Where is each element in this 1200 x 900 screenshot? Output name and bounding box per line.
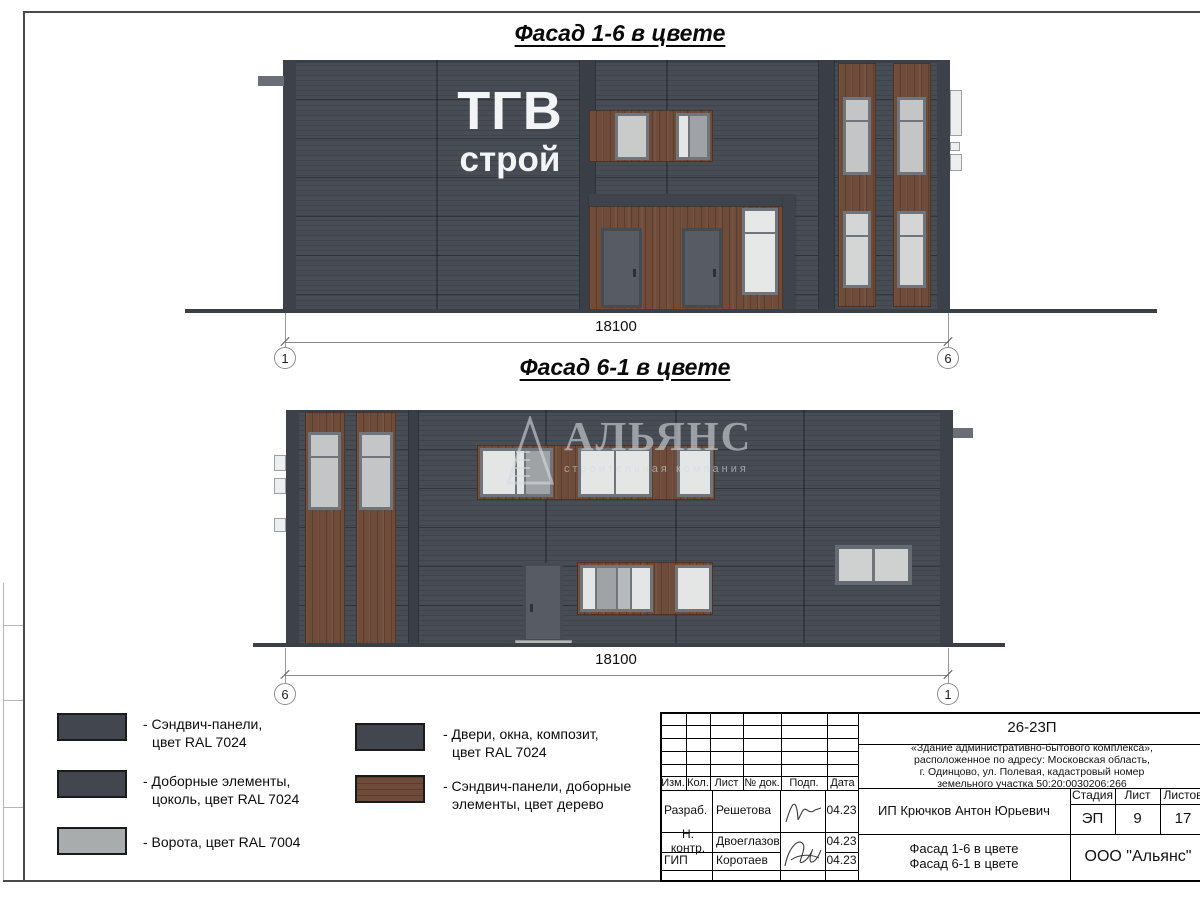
tb-date-ncontrol: 04.23: [825, 832, 858, 852]
tb-date-gip: 04.23: [825, 852, 858, 870]
facade2-right-window: [835, 545, 912, 585]
tb-line: [660, 725, 858, 726]
sign-line-stroy: строй: [430, 142, 590, 177]
window-pane: [679, 116, 690, 157]
facade2-dimension-value: 18100: [556, 651, 676, 668]
facade1-entrance-window: [742, 208, 778, 295]
tb-line: [660, 870, 858, 871]
subject-line: Фасад 6-1 в цвете: [909, 857, 1018, 872]
legend-line: - Ворота, цвет RAL 7004: [143, 833, 300, 851]
tb-line: [660, 751, 858, 752]
facade2-right-corner-trim: [940, 410, 953, 647]
tb-project-code: 26-23П: [858, 712, 1200, 744]
window-transom: [846, 235, 868, 237]
facade2-left-element: [274, 518, 286, 532]
legend-label: - Сэндвич-панели, доборные элементы, цве…: [443, 777, 631, 813]
tb-col-kol: Кол.: [686, 776, 710, 790]
legend-label: - Доборные элементы, цоколь, цвет RAL 70…: [143, 772, 299, 808]
legend-line: - Сэндвич-панели,: [143, 715, 262, 733]
frame-left-line: [23, 11, 25, 882]
facade2-extension-line-right: [948, 648, 949, 688]
tb-line: [660, 764, 858, 765]
tb-date-developer: 04.23: [825, 798, 858, 824]
legend-line: цоколь, цвет RAL 7024: [143, 790, 299, 808]
facade2-right-bracket: [953, 428, 973, 438]
title-block: Изм. Кол. Лист № док. Подп. Дата Разраб.…: [660, 712, 1200, 882]
tb-col-doc: № док.: [743, 776, 781, 790]
facade1-strip2-lower-window: [897, 211, 926, 288]
facade2-lower-window-b: [675, 565, 712, 612]
facade2-left-corner-trim: [286, 410, 299, 647]
tb-subject: Фасад 1-6 в цвете Фасад 6-1 в цвете: [858, 834, 1070, 880]
legend-line: - Доборные элементы,: [143, 772, 299, 790]
legend-label: - Сэндвич-панели, цвет RAL 7024: [143, 715, 262, 751]
facade1-axis-left: 1: [274, 347, 296, 369]
facade1-canopy-support: [783, 194, 795, 310]
legend-swatch-trim-elements: [57, 770, 127, 798]
tb-name-gip: Коротаев: [712, 852, 780, 870]
window-pane: [597, 568, 617, 609]
tb-company: ООО "Альянс": [1070, 834, 1200, 880]
tb-client: ИП Крючков Антон Юрьевич: [858, 788, 1070, 834]
tb-col-izm: Изм.: [660, 776, 686, 790]
tb-border: [660, 880, 1200, 882]
facade1-dimension-value: 18100: [556, 318, 676, 335]
door-handle: [633, 269, 636, 277]
window-pane: [583, 568, 597, 609]
legend-label: - Ворота, цвет RAL 7004: [143, 833, 300, 851]
legend-line: элементы, цвет дерево: [443, 795, 631, 813]
tb-sheets-value: 17: [1160, 804, 1200, 834]
facade2-lower-window-group-a: [580, 565, 653, 612]
tb-sheet-label: Лист: [1115, 788, 1160, 804]
facade2-axis-right: 1: [937, 683, 959, 705]
facade1-right-corner-trim: [937, 60, 950, 310]
frame-margin-line: [3, 583, 4, 880]
facade1-ground-line: [185, 309, 1157, 313]
facade2-door: [523, 563, 563, 642]
watermark-title: АЛЬЯНС: [564, 416, 752, 457]
legend-line: цвет RAL 7024: [443, 743, 599, 761]
door-handle: [530, 604, 533, 612]
tb-project-description: «Здание административно-бытового комплек…: [858, 744, 1200, 788]
tb-col-data: Дата: [827, 776, 858, 790]
facade1-drawing: ТГВ строй: [283, 60, 950, 310]
facade2-title: Фасад 6-1 в цвете: [425, 354, 825, 381]
facade1-vertical-joint: [818, 60, 835, 310]
tb-role-developer: Разраб.: [660, 798, 712, 824]
facade1-downpipe-element: [950, 90, 962, 136]
window-pane: [690, 116, 707, 157]
tb-line: [660, 790, 858, 791]
facade2-strip2-window: [359, 432, 393, 510]
window-transom: [311, 456, 338, 458]
facade1-upper-window-1: [615, 113, 649, 160]
tb-name-developer: Решетова: [712, 798, 780, 824]
facade2-drawing: АЛЬЯНС строительная компания: [286, 410, 953, 647]
legend-label: - Двери, окна, композит, цвет RAL 7024: [443, 725, 599, 761]
tb-name-ncontrol: Двоеглазов: [712, 832, 780, 852]
frame-margin-divider: [3, 625, 23, 626]
alliance-watermark: АЛЬЯНС строительная компания: [506, 416, 752, 486]
facade2-left-element: [274, 455, 286, 471]
window-transom: [362, 456, 390, 458]
tb-sheets-label: Листов: [1160, 788, 1200, 804]
frame-margin-divider: [3, 807, 23, 808]
drawing-sheet: Фасад 1-6 в цвете ТГВ строй: [0, 0, 1200, 900]
facade1-entrance-canopy: [589, 194, 795, 206]
facade1-strip1-lower-window: [843, 211, 871, 288]
facade1-entrance-door-1: [601, 228, 642, 308]
window-pane: [875, 549, 908, 581]
facade2-ground-line: [253, 643, 1005, 647]
window-pane: [678, 568, 709, 609]
facade2-left-element: [274, 478, 286, 494]
frame-top-line: [23, 11, 1200, 13]
facade1-sign: ТГВ строй: [430, 84, 590, 177]
window-transom: [900, 235, 923, 237]
legend-swatch-doors-windows: [355, 723, 425, 751]
window-pane: [632, 568, 650, 609]
window-transom: [745, 232, 775, 234]
legend-swatch-wood-panels: [355, 775, 425, 803]
tb-role-gip: ГИП: [660, 852, 712, 870]
facade1-dimension-line: [285, 342, 948, 343]
door-handle: [713, 269, 716, 277]
subject-line: Фасад 1-6 в цвете: [909, 842, 1018, 857]
description-line: г. Одинцово, ул. Полевая, кадастровый но…: [920, 766, 1145, 778]
tb-col-podp: Подп.: [781, 776, 827, 790]
facade1-strip1-upper-window: [843, 97, 871, 175]
tb-role-ncontrol: Н. контр.: [660, 832, 712, 852]
facade1-downpipe-element: [950, 154, 962, 171]
sign-line-tgv: ТГВ: [430, 84, 590, 138]
facade2-strip1-window: [308, 432, 341, 510]
tb-stage-value: ЭП: [1070, 804, 1115, 834]
facade2-vertical-joint: [408, 410, 419, 647]
facade1-left-bracket: [258, 76, 284, 86]
tb-stage-label: Стадия: [1070, 788, 1115, 804]
facade1-upper-window-2: [676, 113, 710, 160]
alliance-triangle-logo: [506, 416, 554, 486]
watermark-subtitle: строительная компания: [564, 463, 752, 475]
tb-sheet-value: 9: [1115, 804, 1160, 834]
facade1-title: Фасад 1-6 в цвете: [420, 20, 820, 47]
tb-col-list: Лист: [710, 776, 743, 790]
facade2-axis-left: 6: [274, 683, 296, 705]
facade1-left-corner-trim: [283, 60, 296, 310]
legend-line: - Двери, окна, композит,: [443, 725, 599, 743]
description-line: «Здание административно-бытового комплек…: [911, 742, 1153, 754]
facade2-dimension-line: [285, 675, 948, 676]
facade1-axis-right: 6: [937, 347, 959, 369]
facade2-extension-line-left: [285, 648, 286, 688]
tb-line: [660, 738, 858, 739]
frame-margin-divider: [3, 700, 23, 701]
legend-line: цвет RAL 7024: [143, 733, 262, 751]
description-line: расположенное по адресу: Московская обла…: [914, 754, 1150, 766]
legend-swatch-sandwich-panels: [57, 713, 127, 741]
window-transom: [846, 120, 868, 122]
window-pane: [839, 549, 875, 581]
facade1-downpipe-element: [950, 142, 960, 151]
legend-swatch-gates: [57, 827, 127, 855]
window-pane: [618, 568, 632, 609]
facade1-entrance-door-2: [682, 228, 722, 308]
window-transom: [900, 120, 923, 122]
signature-developer: [782, 796, 824, 828]
legend-line: - Сэндвич-панели, доборные: [443, 777, 631, 795]
window-pane: [618, 116, 646, 157]
facade2-panel-seam: [803, 410, 805, 647]
facade1-strip2-upper-window: [897, 97, 926, 175]
signature-gip: [781, 832, 825, 872]
